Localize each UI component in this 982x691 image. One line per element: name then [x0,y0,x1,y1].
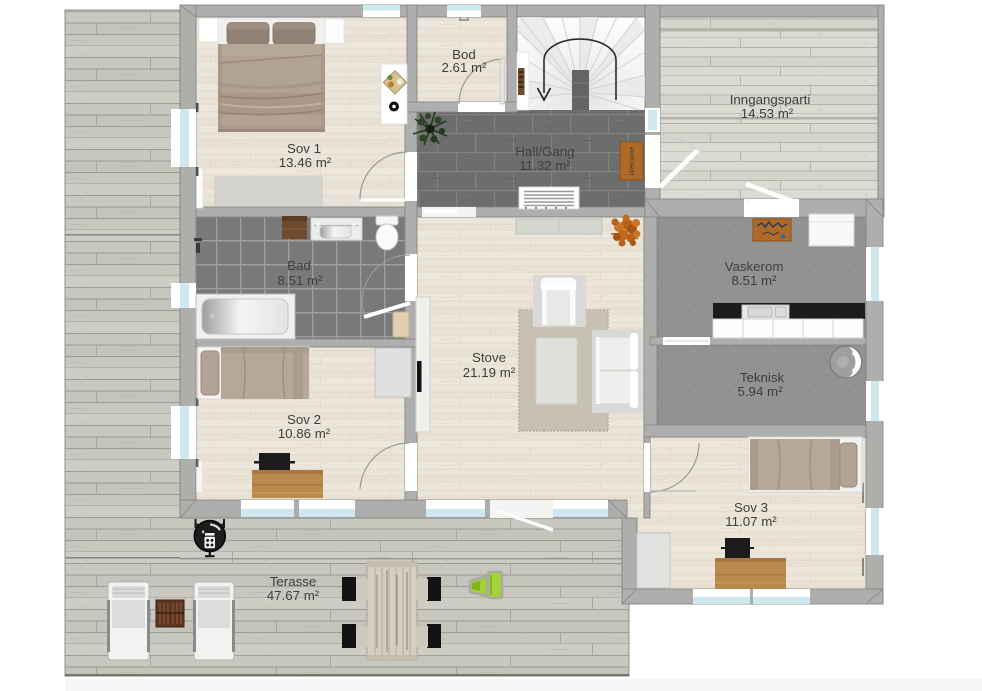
svg-text:11.07 m²: 11.07 m² [725,514,777,529]
svg-text:21.19 m²: 21.19 m² [463,365,516,380]
svg-text:Inngangsparti: Inngangsparti [730,92,811,107]
svg-text:47.67 m²: 47.67 m² [267,588,320,603]
svg-text:Stove: Stove [472,350,506,365]
svg-text:13.46 m²: 13.46 m² [279,155,332,170]
svg-text:Sov 1: Sov 1 [287,141,321,156]
svg-text:Bad: Bad [287,258,311,273]
svg-text:2.61 m²: 2.61 m² [441,60,487,75]
svg-text:11.32 m²: 11.32 m² [519,158,571,173]
svg-text:Terasse: Terasse [270,574,317,589]
svg-text:Sov 3: Sov 3 [734,500,768,515]
svg-text:8.51 m²: 8.51 m² [731,273,777,288]
svg-text:10.86 m²: 10.86 m² [278,426,331,441]
svg-text:Teknisk: Teknisk [740,370,785,385]
svg-text:5.94 m²: 5.94 m² [737,384,783,399]
svg-text:Hall/Gang: Hall/Gang [515,144,574,159]
svg-text:Sov 2: Sov 2 [287,412,321,427]
svg-text:8.51 m²: 8.51 m² [277,273,323,288]
svg-text:14.53 m²: 14.53 m² [741,106,794,121]
svg-text:Welcome: Welcome [629,146,636,175]
svg-text:Vaskerom: Vaskerom [725,259,784,274]
